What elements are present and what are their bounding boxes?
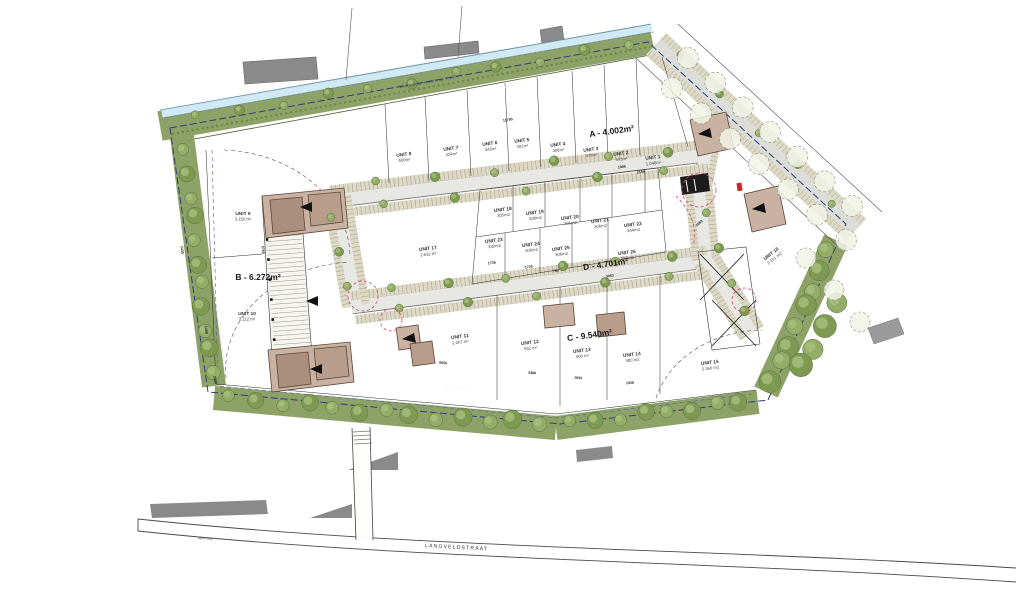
unit-label-10: UNIT 103.112 m² xyxy=(238,311,256,322)
tree-highlight xyxy=(550,157,555,162)
block-label: B - 6.272m² xyxy=(235,272,281,282)
tree-highlight xyxy=(792,356,804,368)
tree-highlight xyxy=(534,293,538,297)
dimension-label: 750 xyxy=(553,269,559,274)
building xyxy=(308,192,343,226)
proposed-tree-icon xyxy=(691,103,712,124)
existing-building xyxy=(868,318,904,344)
tree-highlight xyxy=(565,416,571,422)
access-road xyxy=(352,427,373,541)
tree-highlight xyxy=(432,173,437,178)
proposed-tree-icon xyxy=(678,48,699,69)
tree-highlight xyxy=(731,396,740,405)
tree-highlight xyxy=(324,89,329,94)
tree-highlight xyxy=(445,279,450,284)
tree-highlight xyxy=(181,168,189,176)
tree-highlight xyxy=(780,339,791,350)
tree-highlight xyxy=(186,194,192,200)
tree-highlight xyxy=(756,130,760,134)
unit-label-9: UNIT 93.150 m² xyxy=(235,211,252,222)
tree-highlight xyxy=(534,419,541,426)
unit-label-17: UNIT 171.632 m² xyxy=(419,245,438,258)
tree-highlight xyxy=(662,407,668,413)
tree-highlight xyxy=(816,317,828,329)
tree-highlight xyxy=(189,235,195,241)
dimension-label: 1935 xyxy=(626,381,634,386)
tree-highlight xyxy=(192,258,201,267)
tree-highlight xyxy=(344,283,348,287)
existing-building xyxy=(150,500,268,518)
tree-highlight xyxy=(208,367,215,374)
tree-highlight xyxy=(189,209,197,217)
tree-highlight xyxy=(788,320,796,328)
tree-highlight xyxy=(605,153,609,157)
building xyxy=(543,303,575,328)
tree-highlight xyxy=(250,394,258,402)
meter-box xyxy=(266,238,269,241)
tree-highlight xyxy=(388,285,392,289)
dimension-label: 2430 xyxy=(180,246,185,254)
unit-area: 3.150 m² xyxy=(235,217,252,222)
unit-label-14: UNIT 14900 m2 xyxy=(623,351,642,364)
building xyxy=(410,341,435,366)
street-edge xyxy=(138,531,1016,582)
dimension-label: 2480 xyxy=(528,371,536,376)
tree-highlight xyxy=(224,391,230,397)
existing-building xyxy=(576,446,613,462)
meter-box xyxy=(273,338,276,341)
tree-highlight xyxy=(505,412,514,421)
unit-label-1: UNIT 11.048m² xyxy=(645,154,662,166)
unit-label-5: UNIT 5392m² xyxy=(514,137,531,149)
tree-highlight xyxy=(798,297,808,307)
tree-highlight xyxy=(703,210,707,214)
tree-highlight xyxy=(602,279,607,284)
tree-highlight xyxy=(664,149,669,154)
proposed-tree-icon xyxy=(720,128,741,149)
tree-highlight xyxy=(192,112,196,116)
leader-line xyxy=(346,8,352,80)
dimension-label: 6050 xyxy=(439,361,447,366)
tree-highlight xyxy=(328,214,332,218)
meter-box xyxy=(271,318,274,321)
tree-highlight xyxy=(327,403,333,409)
tree-highlight xyxy=(456,410,465,419)
street-langveldstraat xyxy=(138,519,1016,582)
tree-highlight xyxy=(806,286,814,294)
dimension-label: 1490 xyxy=(204,326,209,334)
unit-label-4: UNIT 4408m² xyxy=(550,141,567,153)
tree-highlight xyxy=(373,178,377,182)
site-plan: 1178519852159173517207503053605024801930… xyxy=(0,0,1024,600)
proposed-tree-icon xyxy=(787,146,808,167)
unit-area: 3.112 m² xyxy=(239,317,256,322)
proposed-tree-icon xyxy=(796,248,816,268)
proposed-tree-icon xyxy=(850,312,870,332)
tree-highlight xyxy=(364,85,368,89)
proposed-tree-icon xyxy=(749,154,770,175)
unit-label-3: UNIT 3478m² xyxy=(583,146,600,158)
proposed-tree-icon xyxy=(824,280,844,300)
tree-highlight xyxy=(453,68,457,72)
meter-box xyxy=(267,258,270,261)
tree-highlight xyxy=(503,275,507,279)
proposed-tree-icon xyxy=(807,204,828,225)
tree-highlight xyxy=(589,414,597,422)
tree-highlight xyxy=(492,63,497,68)
tree-highlight xyxy=(775,354,784,363)
proposed-tree-icon xyxy=(814,171,835,192)
street-surface-label: asfalt weg xyxy=(198,536,213,541)
tree-highlight xyxy=(829,201,833,205)
tree-highlight xyxy=(616,415,622,421)
unit-label-8: UNIT 8500m² xyxy=(396,151,413,163)
tree-highlight xyxy=(537,59,541,63)
building xyxy=(270,197,305,234)
tree-highlight xyxy=(197,277,204,284)
tree-highlight xyxy=(715,244,720,249)
street-name-label: LANGVELDSTRAAT xyxy=(425,543,488,553)
tree-highlight xyxy=(668,253,673,258)
existing-building xyxy=(310,504,352,518)
building xyxy=(314,346,349,380)
proposed-tree-icon xyxy=(662,78,683,99)
proposed-tree-icon xyxy=(778,179,799,200)
street-edge xyxy=(138,519,1016,568)
tree-highlight xyxy=(666,273,670,277)
tree-highlight xyxy=(431,415,438,422)
tree-highlight xyxy=(304,396,312,404)
tree-highlight xyxy=(202,341,211,350)
tree-highlight xyxy=(402,408,411,417)
tree-highlight xyxy=(492,170,496,174)
dimension-label: 1930 xyxy=(574,376,582,381)
unit-label-6: UNIT 6343m² xyxy=(482,140,499,152)
tree-highlight xyxy=(278,401,284,407)
tree-highlight xyxy=(686,404,695,413)
tree-highlight xyxy=(194,300,203,309)
tree-highlight xyxy=(353,406,362,415)
tree-highlight xyxy=(381,405,388,412)
tree-highlight xyxy=(625,42,630,47)
existing-building xyxy=(243,57,318,84)
tree-highlight xyxy=(580,46,586,52)
tree-highlight xyxy=(336,248,341,253)
unit-label-15: UNIT 152.360 m2 xyxy=(701,359,720,372)
unit-label-11: UNIT 112.267 m² xyxy=(451,333,470,346)
proposed-tree-icon xyxy=(842,196,863,217)
proposed-tree-icon xyxy=(732,97,753,118)
tree-highlight xyxy=(396,305,400,309)
tree-highlight xyxy=(236,106,241,111)
tree-highlight xyxy=(729,280,733,284)
dimension-label: 5760 xyxy=(261,246,266,254)
site-plan-drawing: 1178519852159173517207503053605024801930… xyxy=(0,0,1024,600)
tree-highlight xyxy=(820,244,828,252)
tree-highlight xyxy=(559,262,564,267)
proposed-tree-icon xyxy=(836,230,857,251)
tree-highlight xyxy=(660,167,664,171)
proposed-tree-icon xyxy=(760,122,781,143)
tree-highlight xyxy=(594,173,599,178)
tree-highlight xyxy=(640,406,648,414)
tree-highlight xyxy=(464,299,469,304)
unit-label-2: UNIT 2543m² xyxy=(613,150,630,162)
proposed-tree-icon xyxy=(705,72,726,93)
tree-highlight xyxy=(741,307,746,312)
unit-label-7: UNIT 7324m² xyxy=(443,145,460,157)
building xyxy=(276,352,311,388)
tree-highlight xyxy=(485,417,492,424)
tree-highlight xyxy=(281,102,285,106)
tree-highlight xyxy=(712,398,719,405)
tree-highlight xyxy=(805,342,815,352)
tree-highlight xyxy=(762,373,773,384)
tree-highlight xyxy=(451,194,456,199)
tree-highlight xyxy=(178,145,184,151)
tree-highlight xyxy=(381,201,385,205)
meter-box xyxy=(270,298,273,301)
tree-highlight xyxy=(523,188,527,192)
